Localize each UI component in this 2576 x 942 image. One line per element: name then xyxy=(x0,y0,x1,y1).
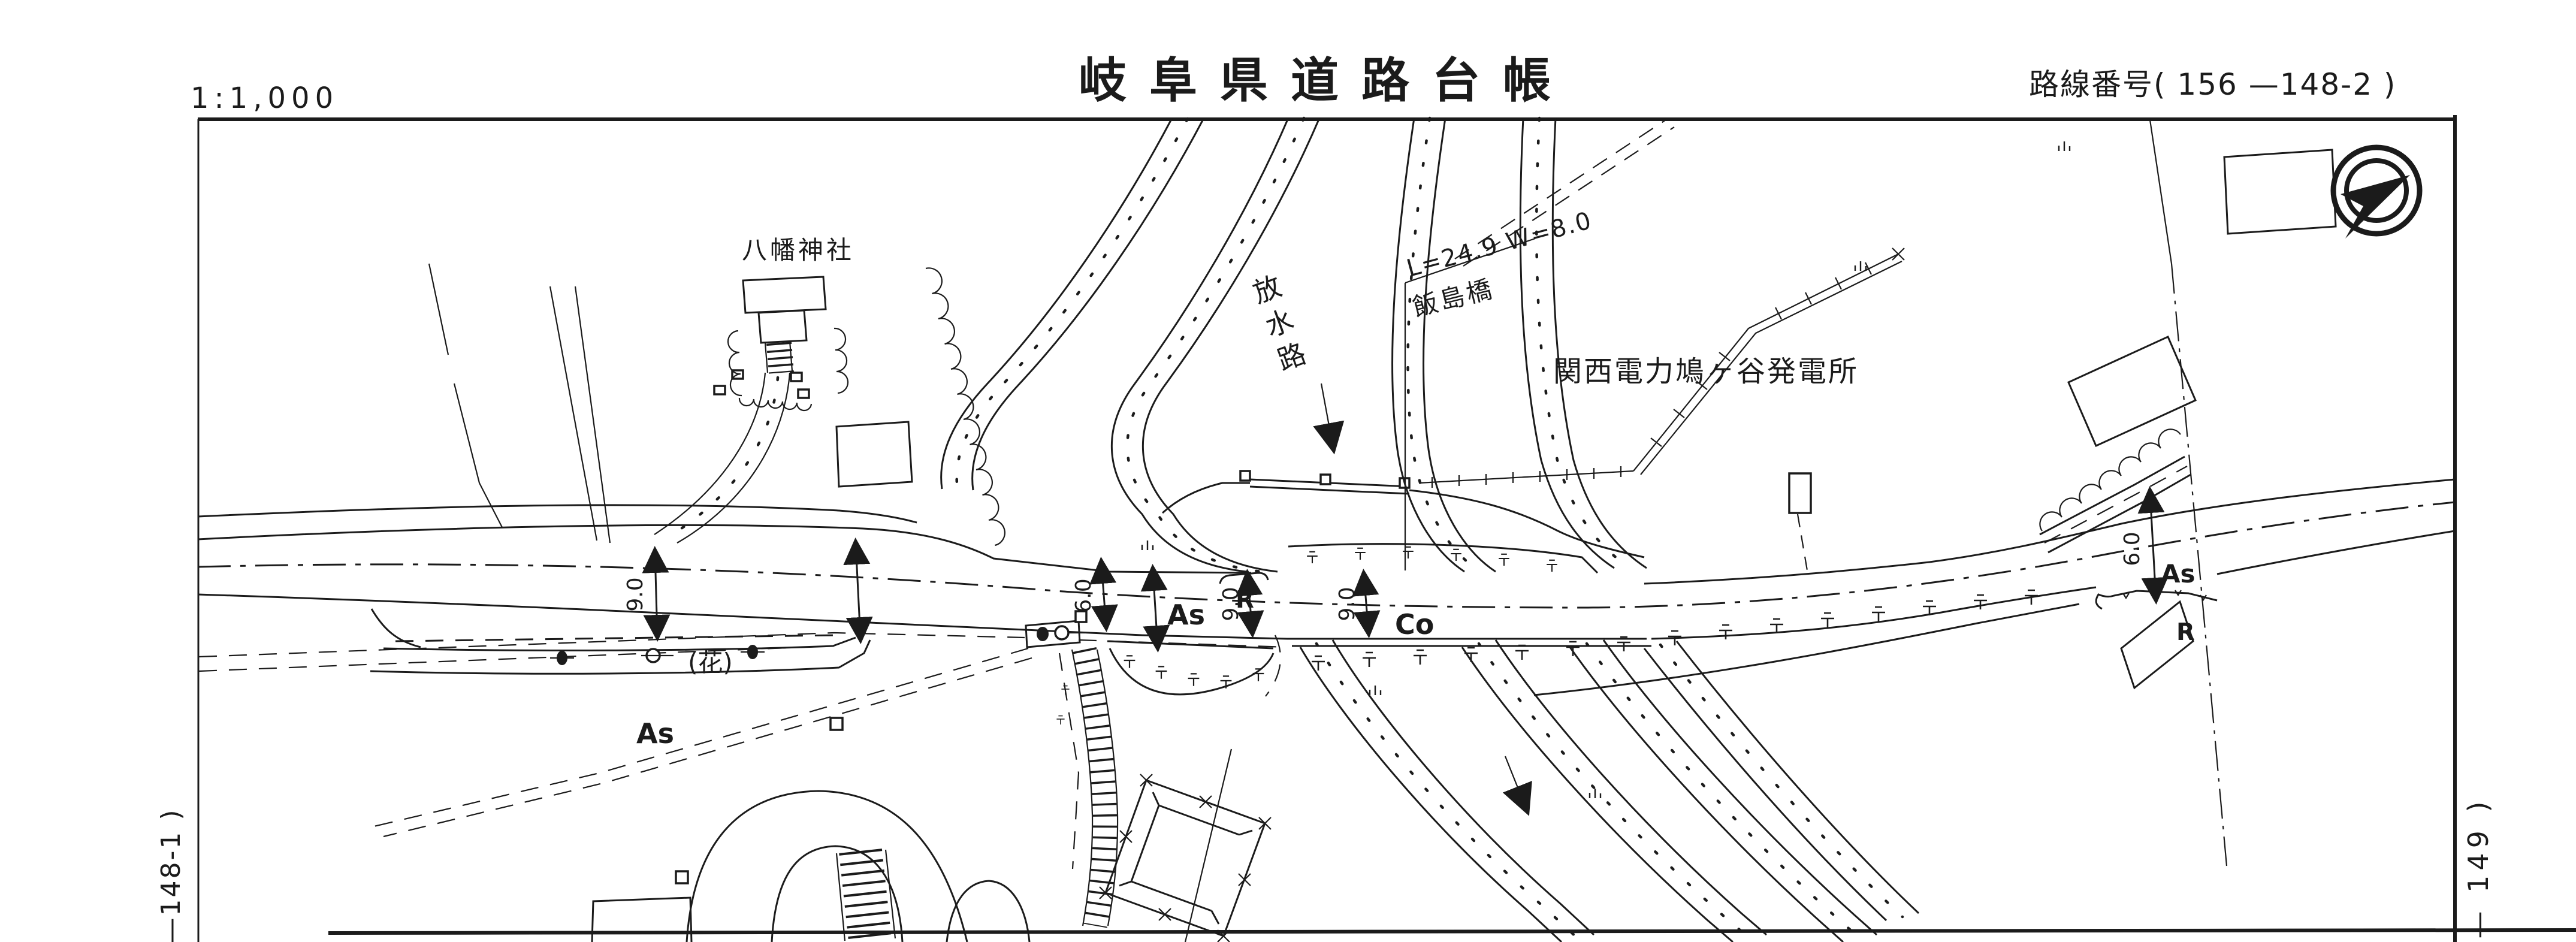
power-plant-label: 関西電力鳩ヶ谷発電所 xyxy=(1553,355,1859,388)
shrine-stairs xyxy=(779,343,781,373)
width-dim-1: 9.0 xyxy=(623,577,648,611)
buildings-east xyxy=(2068,150,2336,688)
dim-arrow xyxy=(856,543,860,639)
building-thick xyxy=(2068,337,2196,446)
service-band-east xyxy=(1409,490,1644,557)
guardrail-label-2: R xyxy=(2176,618,2195,646)
bottom-structures xyxy=(592,718,1029,942)
road-north-edge-east xyxy=(1644,479,2455,584)
spillway-label: 放水路 xyxy=(1249,270,1310,377)
post xyxy=(676,871,688,883)
gate-box xyxy=(1026,621,1080,647)
guardrail-east xyxy=(2096,591,2217,609)
pole-open xyxy=(1055,626,1068,639)
gate-dashed-line xyxy=(1798,514,1807,570)
fenced-enclosure xyxy=(1100,774,1271,942)
surface-label-as-3: As xyxy=(2161,559,2196,588)
spillway-channel xyxy=(941,118,1919,942)
tree-row-right xyxy=(834,328,848,393)
tree-row-left xyxy=(728,331,742,395)
guardrail-bracket-west xyxy=(1220,573,1268,584)
north-sidewalk-band xyxy=(1288,544,1597,573)
surface-label-as-2: As xyxy=(1167,599,1205,631)
big-stairs xyxy=(860,851,870,940)
flow-arrow-downstream xyxy=(1505,756,1527,810)
sheet-ref-left: —148-1 ) xyxy=(156,808,186,942)
width-dim-4: 9.0 xyxy=(1335,587,1360,621)
road-south-edge-far-east xyxy=(2217,531,2455,574)
road-north-shoulder-west xyxy=(198,505,917,523)
post xyxy=(831,718,842,730)
enclosure-x-posts xyxy=(1100,774,1271,942)
dim-arrow xyxy=(1364,574,1369,633)
south-dashed-pair-3 xyxy=(1059,653,1079,869)
map-frame xyxy=(198,115,2576,942)
lantern xyxy=(798,390,809,398)
tree-line-west xyxy=(926,268,1005,545)
sheet-ref-right: — 149 ) xyxy=(2462,797,2495,939)
width-dim-5: 6.0 xyxy=(2120,532,2145,566)
scale-label: 1:1,000 xyxy=(191,81,339,115)
fence-gate-post xyxy=(1789,473,1811,513)
shrine-porch xyxy=(759,310,807,343)
shrine-hall xyxy=(743,277,826,313)
page-title: 岐阜県道路台帳 xyxy=(1079,53,1574,108)
pole-filled xyxy=(1037,627,1049,641)
width-dim-2: 6.0 xyxy=(1071,578,1096,612)
layby-dashed-line xyxy=(395,635,838,641)
shrine-path-edges xyxy=(654,373,790,543)
dim-arrow xyxy=(655,551,657,636)
boundary-lines xyxy=(199,120,2227,942)
planting-label: (花) xyxy=(688,648,733,677)
width-dim-3: 9.0 xyxy=(1219,587,1243,621)
route-number-label: 路線番号( 156 —148-2 ) xyxy=(2029,67,2396,102)
road-centerline xyxy=(198,502,2455,608)
lantern xyxy=(714,386,725,394)
west-wedge xyxy=(1107,641,1273,695)
surface-label-co: Co xyxy=(1395,608,1434,641)
sheet-boundary-solid xyxy=(2150,120,2172,264)
fork-dashed xyxy=(2045,466,2187,543)
road-north-edge-west xyxy=(198,525,1251,573)
gate-structure xyxy=(1026,611,1118,926)
shrine-complex xyxy=(654,277,912,543)
enclosure-outer xyxy=(1106,780,1265,936)
lantern xyxy=(791,373,802,381)
shrine-label: 八幡神社 xyxy=(742,236,854,265)
frame-bottom xyxy=(328,930,2576,933)
retaining-ladder xyxy=(1085,650,1105,926)
north-compass-icon xyxy=(2333,147,2420,238)
north-embankment xyxy=(1307,547,1557,572)
bridge-name-label: 飯島橋 xyxy=(1410,274,1497,322)
wedge-dashed-arc xyxy=(1266,635,1281,696)
road-register-map-sheet: 1:1,000 岐阜県道路台帳 路線番号( 156 —148-2 ) —148-… xyxy=(0,0,2576,942)
north-service-band xyxy=(1162,471,1644,573)
building-topright xyxy=(2224,150,2336,234)
bridge-south-parapet xyxy=(1287,639,1651,646)
road-south-edge-west xyxy=(198,594,1287,639)
surface-label-as-1: As xyxy=(636,717,674,750)
lower-boundary xyxy=(1185,749,1231,942)
partial-building xyxy=(592,898,691,942)
shrine-pond xyxy=(836,422,912,487)
big-arch xyxy=(687,791,967,942)
post xyxy=(1321,475,1330,484)
bridge-annotation: L=24.9 W=8.0 飯島橋 xyxy=(1404,207,1595,570)
fence-ticks-diagonal xyxy=(1651,248,1904,446)
flow-arrow-upstream xyxy=(1321,384,1333,448)
service-band-west xyxy=(1162,483,1250,513)
post xyxy=(1240,471,1250,481)
west-boundary xyxy=(429,264,502,527)
